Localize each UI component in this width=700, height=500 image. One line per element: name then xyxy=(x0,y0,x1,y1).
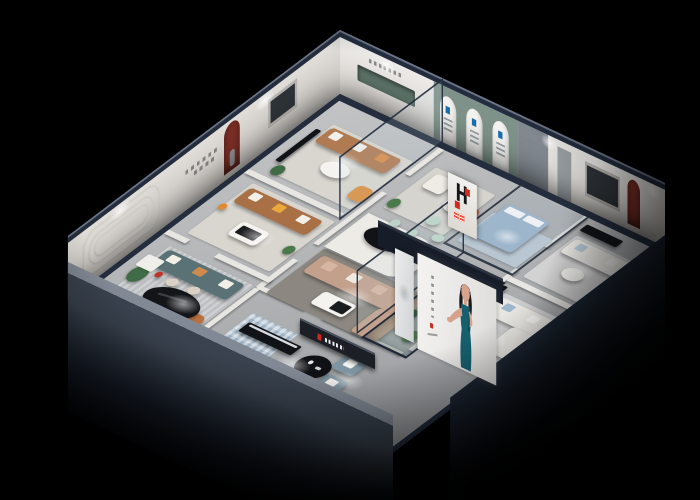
poster-signature xyxy=(427,333,437,336)
blue-logo-icon xyxy=(472,118,476,127)
arched-display-panel xyxy=(466,105,482,161)
red-arched-niche xyxy=(224,116,240,176)
logo-red-block xyxy=(455,200,460,209)
pillow xyxy=(247,192,264,202)
pillow xyxy=(501,303,517,313)
pillow xyxy=(217,279,234,289)
pillow xyxy=(327,131,344,141)
small-lightbox xyxy=(395,248,414,343)
brand-caption-glyphs xyxy=(454,211,464,223)
panel-text-lines xyxy=(444,117,453,135)
panel-text-lines xyxy=(470,129,479,147)
pillow xyxy=(165,254,182,264)
brand-logo: H xyxy=(454,183,470,215)
red-arched-niche xyxy=(628,177,641,229)
panel-text-lines xyxy=(496,142,505,160)
showroom-render: H xyxy=(0,0,700,500)
sculpture xyxy=(230,148,235,168)
recessed-media-panel xyxy=(585,161,620,211)
pillow xyxy=(271,203,288,213)
lightbox-graphic xyxy=(399,280,410,307)
poster-red-seal xyxy=(430,322,433,328)
caption-glyph xyxy=(454,211,458,220)
blue-logo-icon xyxy=(446,106,450,115)
arched-display-panel xyxy=(493,118,509,174)
partition-wall xyxy=(164,230,190,244)
sign-red-logo xyxy=(318,333,322,341)
gray-door xyxy=(558,146,572,202)
pillow xyxy=(605,258,620,267)
pillow xyxy=(295,214,312,224)
blue-logo-icon xyxy=(498,130,502,139)
pillow xyxy=(526,315,542,325)
pillow xyxy=(191,267,208,277)
pillow xyxy=(573,243,588,252)
pillow xyxy=(320,261,339,272)
poster-vertical-text xyxy=(431,275,434,318)
caption-glyph xyxy=(460,214,464,223)
